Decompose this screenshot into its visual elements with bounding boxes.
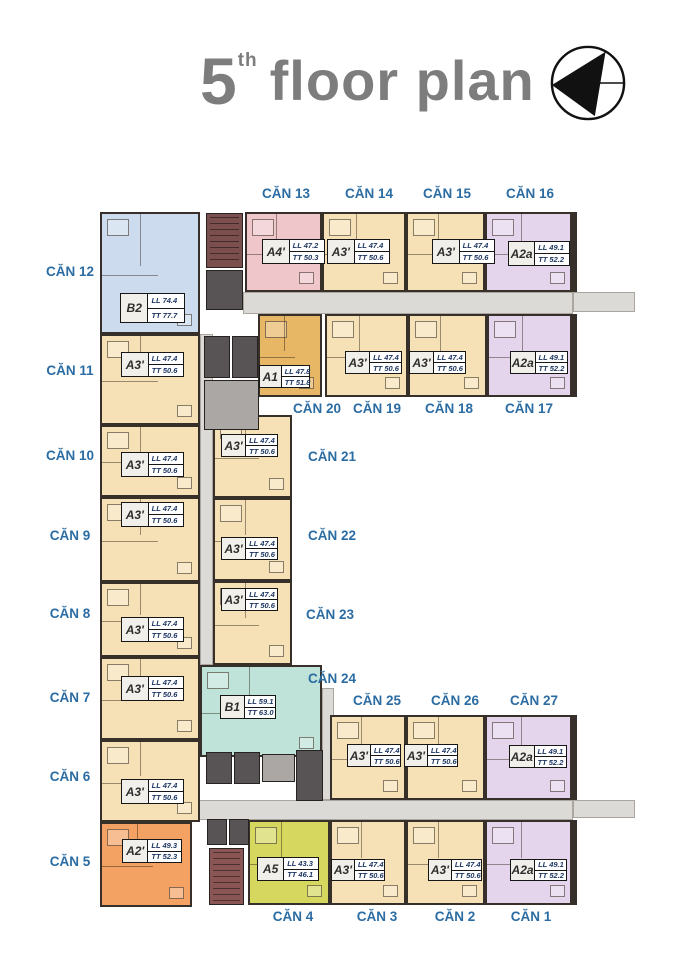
unit-label-box-can-27: A2aLL 49.1TT 52.2 [509,745,567,768]
table-icon [169,887,184,899]
unit-label-box-can-9: A3'LL 47.4TT 50.6 [121,502,184,527]
area-tt-value: TT 50.6 [149,630,183,641]
title-text: floor plan [270,49,535,112]
area-ll-value: LL 47.4 [149,780,183,792]
unit-areas: LL 59.1TT 63.0 [245,696,275,718]
table-icon [299,272,314,284]
can-label-27: CĂN 27 [503,693,565,708]
bed-icon [492,827,514,844]
can-label-18: CĂN 18 [420,401,478,416]
bed-icon [107,747,129,764]
bed-icon [220,505,242,522]
table-icon [307,885,322,897]
corridor-bottom [195,800,573,820]
bed-icon [329,219,351,236]
unit-can-11 [100,334,200,425]
unit-label-box-can-7: A3'LL 47.4TT 50.6 [121,676,184,701]
unit-type-label: A3' [122,780,149,803]
area-ll-value: LL 47.4 [149,677,183,689]
outer-wall-right-1 [570,212,577,292]
can-label-6: CĂN 6 [44,769,96,784]
bed-icon [494,321,516,338]
unit-type-label: A3' [332,860,355,880]
unit-areas: LL 47.4TT 50.6 [149,453,183,476]
area-ll-value: LL 74.4 [148,294,184,309]
area-tt-value: TT 52.2 [535,254,569,265]
area-tt-value: TT 50.6 [355,252,389,263]
unit-type-label: A2' [123,840,148,862]
elevator-bottom-left-2 [229,819,249,845]
can-label-8: CĂN 8 [44,606,96,621]
unit-can-5 [100,822,192,907]
unit-type-label: A3' [410,352,434,373]
unit-label-box-can-6: A3'LL 47.4TT 50.6 [121,779,184,804]
table-icon [299,737,314,749]
unit-label-box-can-4: A5LL 43.3TT 46.1 [257,857,319,881]
unit-label-box-can-18: A3'LL 47.4TT 50.6 [409,351,466,374]
corridor-top [243,292,573,314]
table-icon [462,780,477,792]
unit-type-label: A3' [429,860,452,880]
area-ll-value: LL 59.1 [245,696,275,708]
unit-areas: LL 47.4TT 50.6 [149,353,183,376]
ordinal-suffix: th [238,50,258,71]
table-icon [383,780,398,792]
area-tt-value: TT 52.2 [536,363,567,373]
bed-icon [207,672,229,689]
unit-type-label: A5 [258,858,284,880]
floor-plan: 5thfloor plan A2aLL 49.1TT 52.2CĂN 1A3'L… [0,0,679,960]
can-label-19: CĂN 19 [348,401,406,416]
area-tt-value: TT 50.6 [452,871,481,881]
area-ll-value: LL 47.4 [149,453,183,465]
area-tt-value: TT 52.2 [535,871,566,881]
unit-areas: LL 47.4TT 50.6 [428,745,457,766]
area-ll-value: LL 47.4 [452,860,481,871]
unit-label-box-can-24: B1LL 59.1TT 63.0 [220,695,276,719]
elevator-mid-left-1 [204,336,230,378]
can-label-12: CĂN 12 [44,264,96,279]
unit-type-label: A3' [222,538,246,559]
unit-type-label: A3' [122,353,149,376]
bed-icon [252,219,274,236]
table-icon [550,885,565,897]
area-tt-value: TT 50.6 [246,549,277,559]
bed-icon [255,827,277,844]
unit-type-label: A3' [405,745,428,766]
table-icon [177,405,192,417]
unit-areas: LL 49.1TT 52.2 [536,352,567,373]
unit-label-box-can-11: A3'LL 47.4TT 50.6 [121,352,184,377]
area-tt-value: TT 50.6 [371,756,400,766]
page-title: 5thfloor plan [200,48,535,114]
can-label-3: CĂN 3 [346,909,408,924]
bed-icon [415,321,437,338]
can-label-26: CĂN 26 [424,693,486,708]
area-ll-value: LL 47.4 [246,435,277,446]
can-label-13: CĂN 13 [251,186,321,201]
area-ll-value: LL 47.2 [290,240,324,252]
area-ll-value: LL 47.4 [355,240,389,252]
table-icon [550,272,565,284]
unit-type-label: A2a [510,746,535,767]
unit-label-box-can-17: A2aLL 49.1TT 52.2 [510,351,568,374]
bed-icon [107,589,129,606]
area-tt-value: TT 46.1 [284,870,318,881]
table-icon [550,377,565,389]
unit-areas: LL 47.4TT 50.6 [460,240,494,263]
can-label-15: CĂN 15 [412,186,482,201]
unit-areas: LL 47.4TT 50.6 [149,618,183,641]
can-label-17: CĂN 17 [500,401,558,416]
unit-label-box-can-3: A3'LL 47.4TT 50.6 [331,859,385,881]
can-label-16: CĂN 16 [495,186,565,201]
table-icon [269,645,284,657]
unit-areas: LL 47.4TT 50.6 [371,745,400,766]
elevator-bottom-left-1 [207,819,227,845]
elevator-bottom-1 [206,752,232,784]
bed-icon [107,432,129,449]
unit-areas: LL 49.3TT 52.3 [148,840,181,862]
area-tt-value: TT 50.6 [246,600,277,610]
bed-icon [337,722,359,739]
unit-areas: LL 49.1TT 52.2 [535,746,566,767]
can-label-21: CĂN 21 [303,449,361,464]
stairwell-bottom-left [209,848,244,905]
unit-areas: LL 47.4TT 50.6 [246,538,277,559]
unit-type-label: A3' [328,240,355,263]
table-icon [383,885,398,897]
unit-type-label: A3' [346,352,370,373]
table-icon [462,885,477,897]
can-label-25: CĂN 25 [346,693,408,708]
area-ll-value: LL 49.3 [148,840,181,852]
table-icon [383,272,398,284]
unit-areas: LL 47.4TT 50.6 [246,589,277,610]
area-ll-value: LL 47.4 [370,352,401,363]
area-ll-value: LL 47.4 [149,353,183,365]
area-tt-value: TT 52.2 [535,757,566,767]
area-ll-value: LL 47.4 [355,860,384,871]
outer-wall-right-4 [570,820,577,905]
unit-areas: LL 47.4TT 50.6 [370,352,401,373]
stairwell-top-left [206,213,243,268]
outer-wall-right-2 [570,314,577,397]
area-tt-value: TT 50.6 [460,252,494,263]
area-tt-value: TT 50.6 [434,363,465,373]
bed-icon [332,321,354,338]
area-ll-value: LL 49.1 [535,746,566,757]
area-ll-value: LL 43.3 [284,858,318,870]
can-label-7: CĂN 7 [44,690,96,705]
floor-number: 5 [200,44,238,118]
unit-areas: LL 47.4TT 50.6 [149,503,183,526]
table-icon [385,377,400,389]
area-tt-value: TT 50.3 [290,252,324,263]
can-label-11: CĂN 11 [44,363,96,378]
area-ll-value: LL 47.4 [428,745,457,756]
unit-label-box-can-23: A3'LL 47.4TT 50.6 [221,588,278,611]
area-ll-value: LL 47.4 [246,538,277,549]
bed-icon [265,321,287,338]
can-label-10: CĂN 10 [44,448,96,463]
area-ll-value: LL 47.4 [434,352,465,363]
unit-type-label: A3' [122,618,149,641]
area-ll-value: LL 47.8 [282,366,311,377]
unit-areas: LL 74.4TT 77.7 [148,294,184,322]
area-tt-value: TT 50.6 [355,871,384,881]
can-label-4: CĂN 4 [262,909,324,924]
area-ll-value: LL 47.4 [371,745,400,756]
unit-label-box-can-1: A2aLL 49.1TT 52.2 [510,859,567,881]
unit-label-box-can-5: A2'LL 49.3TT 52.3 [122,839,182,863]
unit-label-box-can-8: A3'LL 47.4TT 50.6 [121,617,184,642]
area-ll-value: LL 47.4 [460,240,494,252]
elevator-mid-left-2 [232,336,258,378]
area-ll-value: LL 49.1 [536,352,567,363]
unit-type-label: A3' [222,589,246,610]
area-tt-value: TT 50.6 [246,446,277,456]
unit-type-label: A4' [263,240,290,263]
table-icon [177,562,192,574]
unit-label-box-can-13: A4'LL 47.2TT 50.3 [262,239,325,264]
unit-areas: LL 47.4TT 50.6 [149,780,183,803]
can-label-5: CĂN 5 [44,854,96,869]
unit-type-label: A2a [511,352,536,373]
unit-label-box-can-26: A3'LL 47.4TT 50.6 [404,744,458,767]
elevator-top-left [206,270,243,310]
unit-type-label: A3' [122,453,149,476]
unit-type-label: A3' [122,677,149,700]
unit-label-box-can-19: A3'LL 47.4TT 50.6 [345,351,402,374]
unit-label-box-can-10: A3'LL 47.4TT 50.6 [121,452,184,477]
unit-label-box-can-21: A3'LL 47.4TT 50.6 [221,434,278,457]
elevator-lobby-bottom [262,754,295,782]
bed-icon [492,722,514,739]
unit-label-box-can-12: B2LL 74.4TT 77.7 [120,293,185,323]
bed-icon [492,219,514,236]
unit-areas: LL 43.3TT 46.1 [284,858,318,880]
unit-type-label: A3' [122,503,149,526]
compass-icon [549,44,627,122]
area-ll-value: LL 47.4 [246,589,277,600]
unit-type-label: B1 [221,696,245,718]
elevator-bottom-2 [234,752,260,784]
unit-label-box-can-22: A3'LL 47.4TT 50.6 [221,537,278,560]
unit-type-label: A1 [260,366,282,387]
unit-areas: LL 49.1TT 52.2 [535,860,566,880]
can-label-23: CĂN 23 [301,607,359,622]
can-label-2: CĂN 2 [424,909,486,924]
unit-areas: LL 47.4TT 50.6 [434,352,465,373]
unit-label-box-can-16: A2aLL 49.1TT 52.2 [508,241,570,266]
table-icon [464,377,479,389]
area-tt-value: TT 50.6 [149,515,183,526]
can-label-14: CĂN 14 [334,186,404,201]
unit-type-label: A3' [222,435,246,456]
corridor-top-right-stub [573,292,635,312]
area-ll-value: LL 49.1 [535,860,566,871]
area-tt-value: TT 51.8 [282,377,311,387]
shaft-bottom [296,750,323,801]
area-ll-value: LL 47.4 [149,618,183,630]
area-tt-value: TT 50.6 [149,365,183,376]
unit-areas: LL 47.4TT 50.6 [246,435,277,456]
unit-label-box-can-2: A3'LL 47.4TT 50.6 [428,859,482,881]
area-tt-value: TT 50.6 [149,465,183,476]
bed-icon [413,219,435,236]
unit-type-label: A2a [509,242,535,265]
corridor-bottom-right-stub [573,800,635,818]
area-tt-value: TT 77.7 [148,309,184,323]
area-ll-value: LL 47.4 [149,503,183,515]
area-ll-value: LL 49.1 [535,242,569,254]
unit-label-box-can-25: A3'LL 47.4TT 50.6 [347,744,401,767]
can-label-1: CĂN 1 [500,909,562,924]
table-icon [269,561,284,573]
table-icon [177,477,192,489]
unit-label-box-can-15: A3'LL 47.4TT 50.6 [432,239,495,264]
bed-icon [413,722,435,739]
area-tt-value: TT 63.0 [245,708,275,719]
table-icon [462,272,477,284]
area-tt-value: TT 50.6 [149,689,183,700]
area-tt-value: TT 50.6 [370,363,401,373]
area-tt-value: TT 50.6 [149,792,183,803]
unit-label-box-can-14: A3'LL 47.4TT 50.6 [327,239,390,264]
unit-type-label: A3' [433,240,460,263]
unit-type-label: B2 [121,294,148,322]
bed-icon [413,827,435,844]
area-tt-value: TT 52.3 [148,852,181,863]
unit-type-label: A2a [511,860,535,880]
elevator-lobby-mid-left [204,380,259,430]
table-icon [550,780,565,792]
bed-icon [107,219,129,236]
unit-type-label: A3' [348,745,371,766]
can-label-22: CĂN 22 [303,528,361,543]
table-icon [269,478,284,490]
outer-wall-right-3 [570,715,577,800]
area-tt-value: TT 50.6 [428,756,457,766]
can-label-20: CĂN 20 [288,401,346,416]
unit-areas: LL 47.4TT 50.6 [355,860,384,880]
unit-areas: LL 49.1TT 52.2 [535,242,569,265]
bed-icon [337,827,359,844]
unit-areas: LL 47.8TT 51.8 [282,366,311,387]
can-label-24: CĂN 24 [303,671,361,686]
unit-areas: LL 47.4TT 50.6 [149,677,183,700]
unit-areas: LL 47.4TT 50.6 [452,860,481,880]
can-label-9: CĂN 9 [44,528,96,543]
unit-areas: LL 47.4TT 50.6 [355,240,389,263]
table-icon [177,720,192,732]
unit-areas: LL 47.2TT 50.3 [290,240,324,263]
unit-label-box-can-20: A1LL 47.8TT 51.8 [259,365,310,388]
